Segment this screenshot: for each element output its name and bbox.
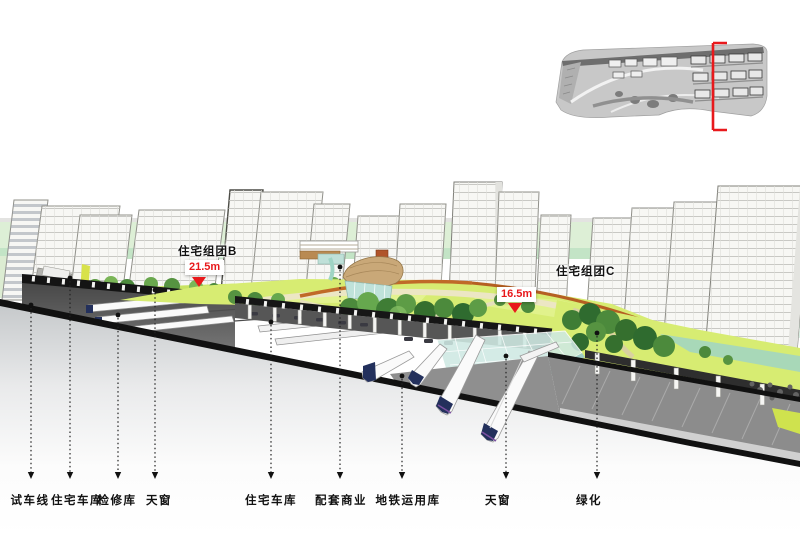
callout-label: 住宅车库 — [51, 492, 103, 508]
callout-label: 地铁运用库 — [376, 492, 441, 508]
cluster-b-label: 住宅组团B — [178, 243, 237, 259]
callout-label: 试车线 — [11, 492, 50, 508]
cluster-b-elevation: 21.5m — [185, 260, 224, 275]
callout-label: 住宅车库 — [245, 492, 297, 508]
callout-label: 配套商业 — [315, 492, 367, 508]
cluster-c-elevation: 16.5m — [497, 287, 536, 302]
rendering-scene — [0, 0, 800, 537]
cluster-c-marker-triangle — [508, 303, 522, 313]
callout-label: 检修库 — [98, 492, 137, 508]
cluster-c-label: 住宅组团C — [556, 263, 615, 279]
site-plan-keymap — [556, 44, 767, 118]
section-perspective-diagram: 住宅组团B 21.5m 住宅组团C 16.5m 试车线住宅车库检修库天窗住宅车库… — [0, 0, 800, 537]
callout-label: 绿化 — [576, 492, 602, 508]
callout-label: 天窗 — [485, 492, 511, 508]
callout-label: 天窗 — [146, 492, 172, 508]
cluster-b-marker-triangle — [192, 277, 206, 287]
